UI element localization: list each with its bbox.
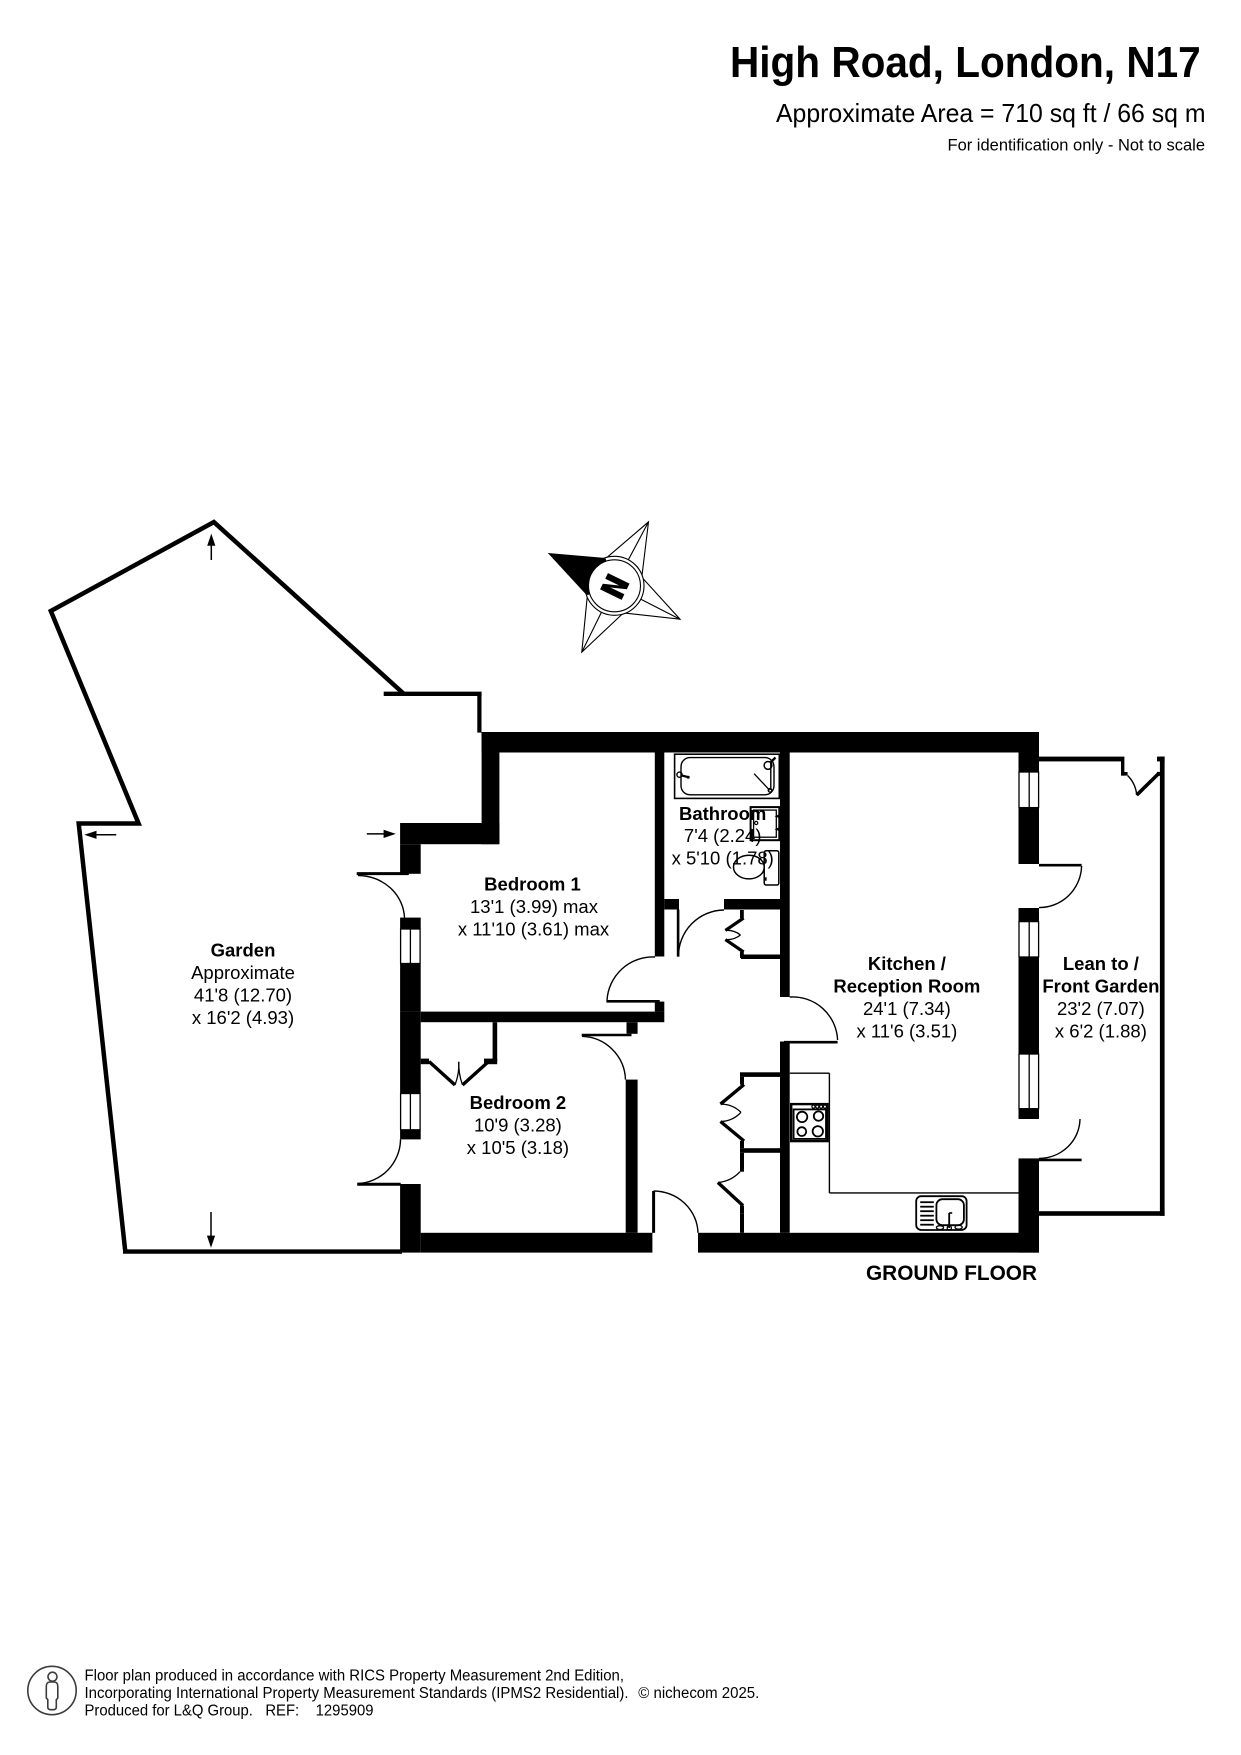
- svg-text:10'9 (3.28): 10'9 (3.28): [474, 1114, 562, 1135]
- svg-text:13'1 (3.99) max: 13'1 (3.99) max: [470, 896, 599, 917]
- svg-text:Garden: Garden: [211, 940, 276, 961]
- svg-text:x 10'5 (3.18): x 10'5 (3.18): [467, 1137, 569, 1158]
- svg-text:41'8 (12.70): 41'8 (12.70): [194, 985, 292, 1006]
- svg-text:x 11'10 (3.61) max: x 11'10 (3.61) max: [458, 918, 610, 939]
- svg-text:x 6'2 (1.88): x 6'2 (1.88): [1055, 1020, 1147, 1041]
- svg-text:x 16'2 (4.93): x 16'2 (4.93): [192, 1007, 294, 1028]
- svg-text:Produced for L&Q Group. REF:: Produced for L&Q Group. REF: 1295909: [85, 1703, 374, 1720]
- svg-text:Floor plan produced in accorda: Floor plan produced in accordance with R…: [85, 1667, 625, 1684]
- svg-text:For identification only - Not: For identification only - Not to scale: [948, 137, 1206, 155]
- svg-text:23'2 (7.07): 23'2 (7.07): [1057, 998, 1145, 1019]
- svg-text:24'1 (7.34): 24'1 (7.34): [863, 998, 951, 1019]
- svg-text:GROUND FLOOR: GROUND FLOOR: [866, 1262, 1037, 1285]
- svg-text:Approximate: Approximate: [191, 962, 295, 983]
- svg-text:Bedroom 2: Bedroom 2: [470, 1092, 567, 1113]
- svg-text:Bathroom: Bathroom: [679, 803, 766, 824]
- svg-text:7'4 (2.24): 7'4 (2.24): [684, 825, 762, 846]
- svg-text:High Road, London, N17: High Road, London, N17: [730, 39, 1201, 87]
- svg-text:Lean to /: Lean to /: [1063, 953, 1139, 974]
- svg-text:Bedroom 1: Bedroom 1: [484, 874, 581, 895]
- svg-text:x 5'10 (1.78): x 5'10 (1.78): [672, 848, 774, 869]
- svg-text:Incorporating International Pr: Incorporating International Property Mea…: [85, 1685, 629, 1702]
- svg-text:x 11'6 (3.51): x 11'6 (3.51): [856, 1020, 957, 1041]
- svg-text:Front Garden: Front Garden: [1042, 976, 1159, 997]
- svg-text:© nichecom 2025.: © nichecom 2025.: [638, 1685, 759, 1702]
- svg-text:Kitchen /: Kitchen /: [868, 953, 946, 974]
- svg-text:Reception Room: Reception Room: [833, 976, 980, 997]
- svg-text:Approximate Area = 710 sq ft /: Approximate Area = 710 sq ft / 66 sq m: [776, 98, 1206, 128]
